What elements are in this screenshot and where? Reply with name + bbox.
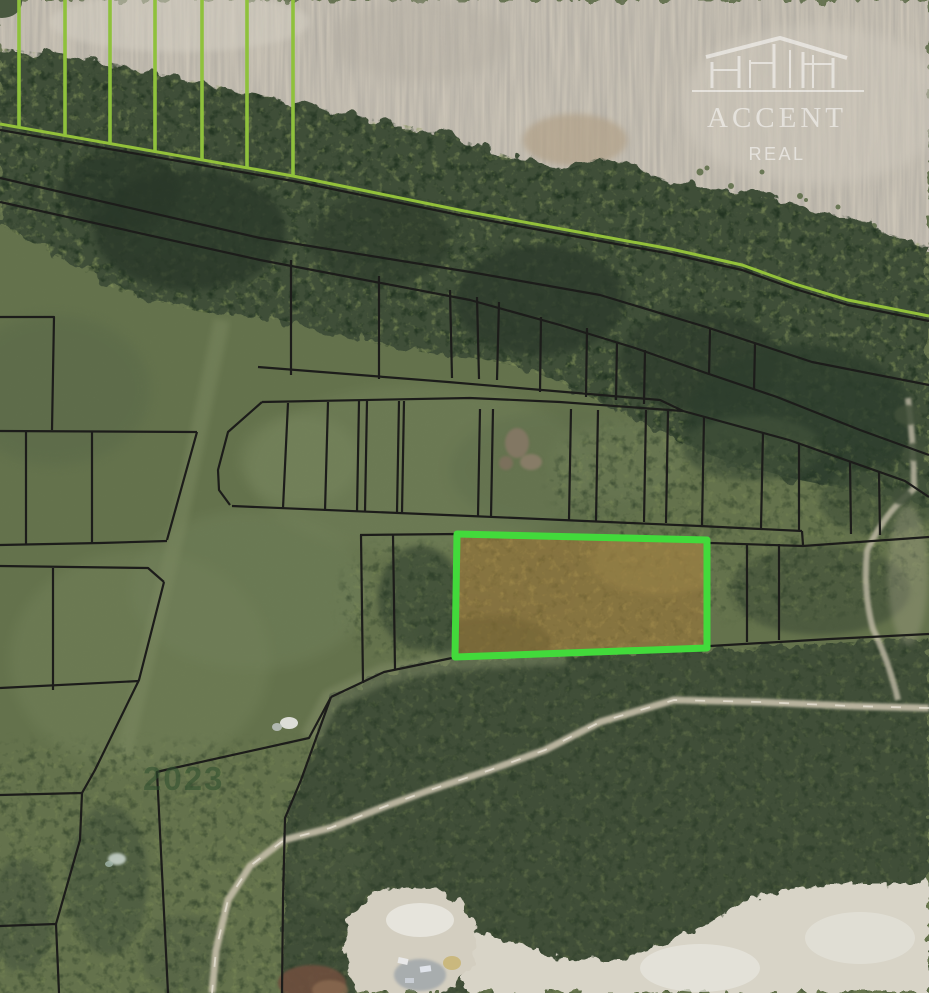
svg-text:REAL: REAL xyxy=(748,144,805,164)
svg-text:2023: 2023 xyxy=(143,760,224,797)
svg-text:ACCENT: ACCENT xyxy=(707,102,847,134)
